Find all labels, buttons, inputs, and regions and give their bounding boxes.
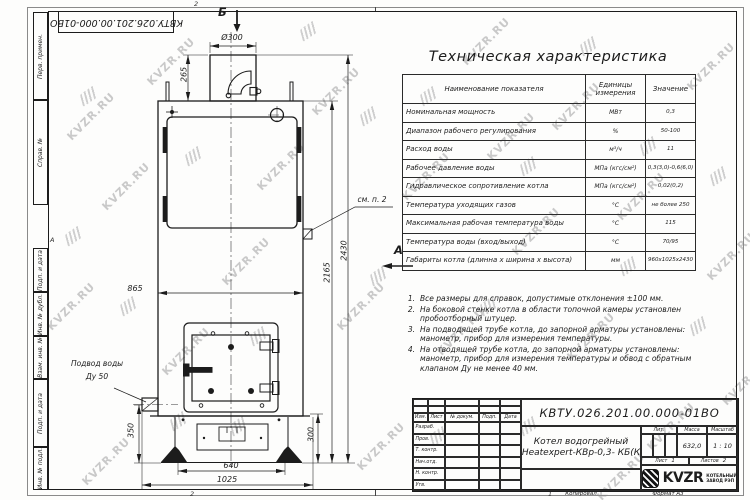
title-block-cell bbox=[445, 468, 479, 480]
title-block-cell bbox=[479, 434, 500, 446]
top-doc-number-box: КВТУ.026.201.00.000-01ВО bbox=[58, 11, 174, 33]
frame-box-perv-primen: Перв. примен. bbox=[33, 12, 48, 100]
spec-row: Расход водым³/ч11 bbox=[403, 141, 696, 160]
title-block-cell bbox=[445, 434, 479, 446]
revision-header-3: Подп. bbox=[479, 413, 500, 422]
dim-2165: 2165 bbox=[323, 258, 332, 288]
title-block-cell-label: Нач.отд. bbox=[413, 457, 445, 469]
spec-value-cell: 960x1025x2430 bbox=[646, 252, 696, 271]
spec-row: Максимальная рабочая температура воды°С1… bbox=[403, 215, 696, 234]
dim-1025: 1025 bbox=[207, 475, 247, 484]
spec-unit-cell: м³/ч bbox=[586, 141, 646, 160]
spec-unit-cell: °С bbox=[586, 196, 646, 215]
view-b-label: Б bbox=[218, 5, 227, 19]
title-block-cell bbox=[445, 480, 479, 492]
note-number: 3. bbox=[404, 325, 415, 344]
water-inlet-label-line2: Ду 50 bbox=[66, 372, 128, 381]
spec-row: Диапазон рабочего регулирования%50-100 bbox=[403, 122, 696, 141]
fold-tick-top bbox=[375, 7, 376, 11]
title-block-doc-number: КВТУ.026.201.00.000-01ВО bbox=[521, 399, 738, 426]
spec-unit-cell: мм bbox=[586, 252, 646, 271]
dim-865: 865 bbox=[118, 284, 152, 293]
frame-label: Взам. инв. № bbox=[37, 337, 44, 378]
spec-name-cell: Габариты котла (длинна x ширина x высота… bbox=[403, 252, 586, 271]
title-block-cell-label: Разраб. bbox=[413, 422, 445, 434]
title-block-cell-label: Пров. bbox=[413, 434, 445, 446]
spec-value-cell: 50-100 bbox=[646, 122, 696, 141]
title-block-cell bbox=[479, 468, 500, 480]
spec-unit-cell: °С bbox=[586, 233, 646, 252]
note-text: На боковой стенке котла в области топочн… bbox=[420, 305, 696, 324]
dim-265: 265 bbox=[180, 63, 189, 87]
sheet-label: Лист bbox=[655, 459, 667, 464]
note-text: На подводящей трубе котла, до запорной а… bbox=[420, 325, 696, 344]
title-block-cell bbox=[500, 434, 521, 446]
title-block-cell bbox=[479, 422, 500, 434]
note-number: 2. bbox=[404, 305, 415, 324]
frame-label: Подп. и дата bbox=[37, 250, 44, 291]
dim-350: 350 bbox=[127, 418, 136, 444]
title-block-cell bbox=[479, 445, 500, 457]
logo-sub-line2: ЗАВОД РЭП bbox=[706, 478, 737, 483]
spec-header-name: Наименование показателя bbox=[403, 75, 586, 104]
zone-number-bottom-left: 2 bbox=[190, 490, 194, 498]
spec-row: Температура уходящих газов°Сне более 250 bbox=[403, 196, 696, 215]
spec-row: Габариты котла (длинна x ширина x высота… bbox=[403, 252, 696, 271]
mass-value: 632,0 bbox=[677, 434, 707, 457]
title-block: Изм.Лист№ докум.Подп.ДатаРазраб.Пров.Т. … bbox=[412, 398, 739, 492]
title-block-cell bbox=[445, 422, 479, 434]
lit-cell-2 bbox=[653, 434, 665, 457]
product-name-line2: Heatexpert-КВр-0,3- КБ(К bbox=[522, 448, 640, 459]
spec-name-cell: Гидравлическое сопротивление котла bbox=[403, 178, 586, 197]
dim-2430: 2430 bbox=[340, 236, 349, 266]
spec-table: Наименование показателя Единицы измерени… bbox=[402, 74, 696, 271]
spec-value-cell: не более 250 bbox=[646, 196, 696, 215]
product-name-line1: Котел водогрейный bbox=[534, 437, 629, 448]
spec-name-cell: Температура воды (вход/выход) bbox=[403, 233, 586, 252]
note-item: 3.На подводящей трубе котла, до запорной… bbox=[404, 325, 696, 344]
spec-header-units: Единицы измерения bbox=[586, 75, 646, 104]
title-block-cell bbox=[428, 406, 445, 413]
title-block-cell bbox=[479, 457, 500, 469]
sheets-number: 2 bbox=[723, 458, 727, 464]
title-block-product-name: Котел водогрейный Heatexpert-КВр-0,3- КБ… bbox=[521, 426, 641, 469]
note-item: 2.На боковой стенке котла в области топо… bbox=[404, 305, 696, 324]
note-number: 1. bbox=[404, 294, 415, 304]
title-block-cell bbox=[445, 445, 479, 457]
sheet-cell: Лист 1 bbox=[641, 457, 689, 465]
fold-tick-bottom bbox=[375, 490, 376, 496]
title-block-cell bbox=[500, 445, 521, 457]
zone-marker-left: А bbox=[50, 236, 54, 244]
title-block-cell bbox=[500, 468, 521, 480]
spec-value-cell: 0,02(0,2) bbox=[646, 178, 696, 197]
frame-box-inv-dubl: Инв. № дубл. bbox=[33, 292, 48, 336]
dim-300: 300 bbox=[307, 422, 316, 448]
title-block-cell bbox=[500, 399, 521, 406]
spec-name-cell: Номинальная мощность bbox=[403, 104, 586, 123]
title-block-cell bbox=[428, 399, 445, 406]
company-logo-cell: KVZR КОТЕЛЬНЫЙ ЗАВОД РЭП bbox=[641, 465, 738, 491]
drawing-sheet: KVZR.RUKVZR.RUKVZR.RUKVZR.RUKVZR.RUKVZR.… bbox=[0, 0, 750, 500]
kvzr-logo-icon bbox=[642, 469, 659, 488]
spec-name-cell: Расход воды bbox=[403, 141, 586, 160]
note-number: 4. bbox=[404, 345, 415, 374]
frame-box-vzam-inv: Взам. инв. № bbox=[33, 336, 48, 379]
title-block-cell bbox=[413, 399, 428, 406]
title-block-cell bbox=[479, 406, 500, 413]
scale-value: 1 : 10 bbox=[707, 434, 738, 457]
sheets-cell: Листов 2 bbox=[689, 457, 738, 465]
spec-row: Рабочее давление водыМПа (кгс/см²)0,3(3,… bbox=[403, 159, 696, 178]
spec-header-value: Значение bbox=[646, 75, 696, 104]
title-block-cell bbox=[445, 406, 479, 413]
frame-label: Подп. и дата bbox=[37, 393, 44, 434]
frame-box-sprav: Справ. № bbox=[33, 100, 48, 205]
spec-unit-cell: МПа (кгс/см²) bbox=[586, 178, 646, 197]
scale-header: Масштаб bbox=[707, 426, 738, 434]
spec-row: Гидравлическое сопротивление котлаМПа (к… bbox=[403, 178, 696, 197]
spec-header-row: Наименование показателя Единицы измерени… bbox=[403, 75, 696, 104]
note-item: 1.Все размеры для справок, допустимые от… bbox=[404, 294, 696, 304]
sheet-number: 1 bbox=[671, 458, 675, 464]
spec-value-cell: 70/95 bbox=[646, 233, 696, 252]
mass-header: Масса bbox=[677, 426, 707, 434]
spec-name-cell: Максимальная рабочая температура воды bbox=[403, 215, 586, 234]
title-block-cell bbox=[500, 406, 521, 413]
lit-header: Лит. bbox=[641, 426, 677, 434]
title-block-cell-label: Утв. bbox=[413, 480, 445, 492]
title-block-cell bbox=[500, 480, 521, 492]
spec-value-cell: 11 bbox=[646, 141, 696, 160]
spec-unit-cell: МВт bbox=[586, 104, 646, 123]
spec-row: Номинальная мощностьМВт0,3 bbox=[403, 104, 696, 123]
frame-label: Инв. № подл. bbox=[37, 448, 44, 489]
title-block-cell bbox=[445, 457, 479, 469]
title-block-cell bbox=[479, 399, 500, 406]
title-block-cell bbox=[445, 399, 479, 406]
sheets-label: Листов bbox=[701, 459, 719, 464]
notes-block: 1.Все размеры для справок, допустимые от… bbox=[404, 294, 696, 374]
revision-header-4: Дата bbox=[500, 413, 521, 422]
water-inlet-label-line1: Подвод воды bbox=[66, 359, 128, 368]
note-text: Все размеры для справок, допустимые откл… bbox=[420, 294, 663, 304]
title-block-cell bbox=[500, 457, 521, 469]
kvzr-logo-subtitle: КОТЕЛЬНЫЙ ЗАВОД РЭП bbox=[706, 473, 737, 483]
zone-number-top: 2 bbox=[194, 0, 198, 8]
spec-value-cell: 115 bbox=[646, 215, 696, 234]
revision-header-1: Лист bbox=[428, 413, 445, 422]
title-block-cell-label: Т. контр. bbox=[413, 445, 445, 457]
spec-value-cell: 0,3 bbox=[646, 104, 696, 123]
spec-unit-cell: °С bbox=[586, 215, 646, 234]
spec-name-cell: Диапазон рабочего регулирования bbox=[403, 122, 586, 141]
callout-see-note-2: см. п. 2 bbox=[350, 195, 394, 204]
spec-value-cell: 0,3(3,0)-0,6(6,0) bbox=[646, 159, 696, 178]
lit-cell-1 bbox=[641, 434, 653, 457]
title-block-cell bbox=[413, 406, 428, 413]
spec-unit-cell: МПа (кгс/см²) bbox=[586, 159, 646, 178]
spec-row: Температура воды (вход/выход)°С70/95 bbox=[403, 233, 696, 252]
frame-label: Инв. № дубл. bbox=[37, 293, 44, 334]
dim-640: 640 bbox=[214, 461, 248, 470]
frame-box-podp1: Подп. и дата bbox=[33, 248, 48, 292]
lit-cell-3 bbox=[665, 434, 677, 457]
spec-table-title: Техническая характеристика bbox=[408, 49, 688, 65]
frame-label: Справ. № bbox=[37, 138, 44, 167]
revision-header-2: № докум. bbox=[445, 413, 479, 422]
spec-unit-cell: % bbox=[586, 122, 646, 141]
frame-box-podp2: Подп. и дата bbox=[33, 379, 48, 447]
top-doc-number: КВТУ.026.201.00.000-01ВО bbox=[50, 17, 183, 28]
dim-d300: Ø300 bbox=[209, 33, 255, 42]
title-block-cell bbox=[500, 422, 521, 434]
spec-name-cell: Температура уходящих газов bbox=[403, 196, 586, 215]
revision-header-0: Изм. bbox=[413, 413, 428, 422]
frame-label: Перв. примен. bbox=[37, 33, 44, 78]
kvzr-logo-text: KVZR bbox=[663, 470, 704, 486]
note-text: На отводящей трубе котла, до запорной ар… bbox=[420, 345, 696, 374]
title-block-cell bbox=[479, 480, 500, 492]
spec-name-cell: Рабочее давление воды bbox=[403, 159, 586, 178]
title-block-cell-label: Н. контр. bbox=[413, 468, 445, 480]
title-block-org-cell bbox=[521, 469, 641, 491]
frame-box-inv-podl: Инв. № подл. bbox=[33, 447, 48, 490]
note-item: 4.На отводящей трубе котла, до запорной … bbox=[404, 345, 696, 374]
